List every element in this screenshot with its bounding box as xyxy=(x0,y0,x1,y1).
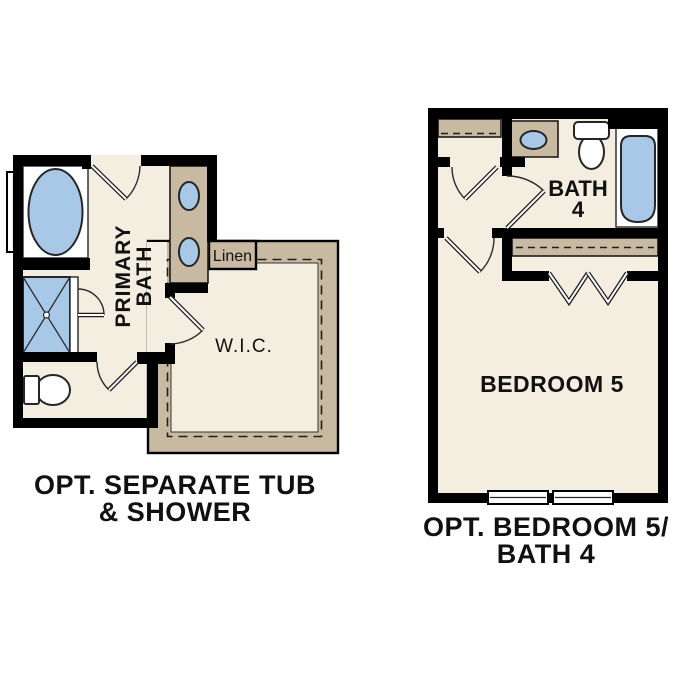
right-plan-title-line1: OPT. BEDROOM 5/ xyxy=(423,512,669,542)
toilet-icon xyxy=(24,375,70,405)
primary-bath-label-line1: PRIMARY xyxy=(112,224,135,327)
hall-closet-shelf xyxy=(438,119,501,137)
bath4-label-line2: 4 xyxy=(572,197,585,222)
bedroom-closet xyxy=(512,238,658,256)
window xyxy=(553,491,613,504)
shower-glass-panel xyxy=(70,277,78,353)
shower-icon xyxy=(23,277,78,353)
bathtub-icon xyxy=(621,136,655,222)
tub-alcove xyxy=(23,166,88,258)
tub-area xyxy=(616,119,658,227)
bedroom5-label: BEDROOM 5 xyxy=(480,371,624,397)
linen-label: Linen xyxy=(213,248,252,265)
left-plan-title-line2: & SHOWER xyxy=(99,497,252,527)
sink-icon xyxy=(179,182,199,210)
left-plan-title-line1: OPT. SEPARATE TUB xyxy=(34,470,316,500)
floorplan-canvas: PRIMARY BATH Linen W.I.C. OPT. SEPARATE … xyxy=(0,0,687,687)
left-plan-separate-tub-shower: PRIMARY BATH Linen W.I.C. OPT. SEPARATE … xyxy=(7,155,338,527)
double-vanity xyxy=(170,166,208,283)
wic-label: W.I.C. xyxy=(215,336,273,357)
bathtub-icon xyxy=(29,169,83,255)
right-plan-title-line2: BATH 4 xyxy=(497,539,596,569)
hall-closet xyxy=(438,119,501,137)
bath4-vanity xyxy=(510,121,558,157)
sink-icon xyxy=(179,238,199,266)
sink-icon xyxy=(521,131,547,149)
floorplan-page: PRIMARY BATH Linen W.I.C. OPT. SEPARATE … xyxy=(0,0,687,687)
window xyxy=(488,491,548,504)
primary-bath-label-line2: BATH xyxy=(133,246,156,307)
right-plan-bedroom5-bath4: BATH 4 BEDROOM 5 OPT. BEDROOM 5/ BATH 4 xyxy=(423,108,669,569)
